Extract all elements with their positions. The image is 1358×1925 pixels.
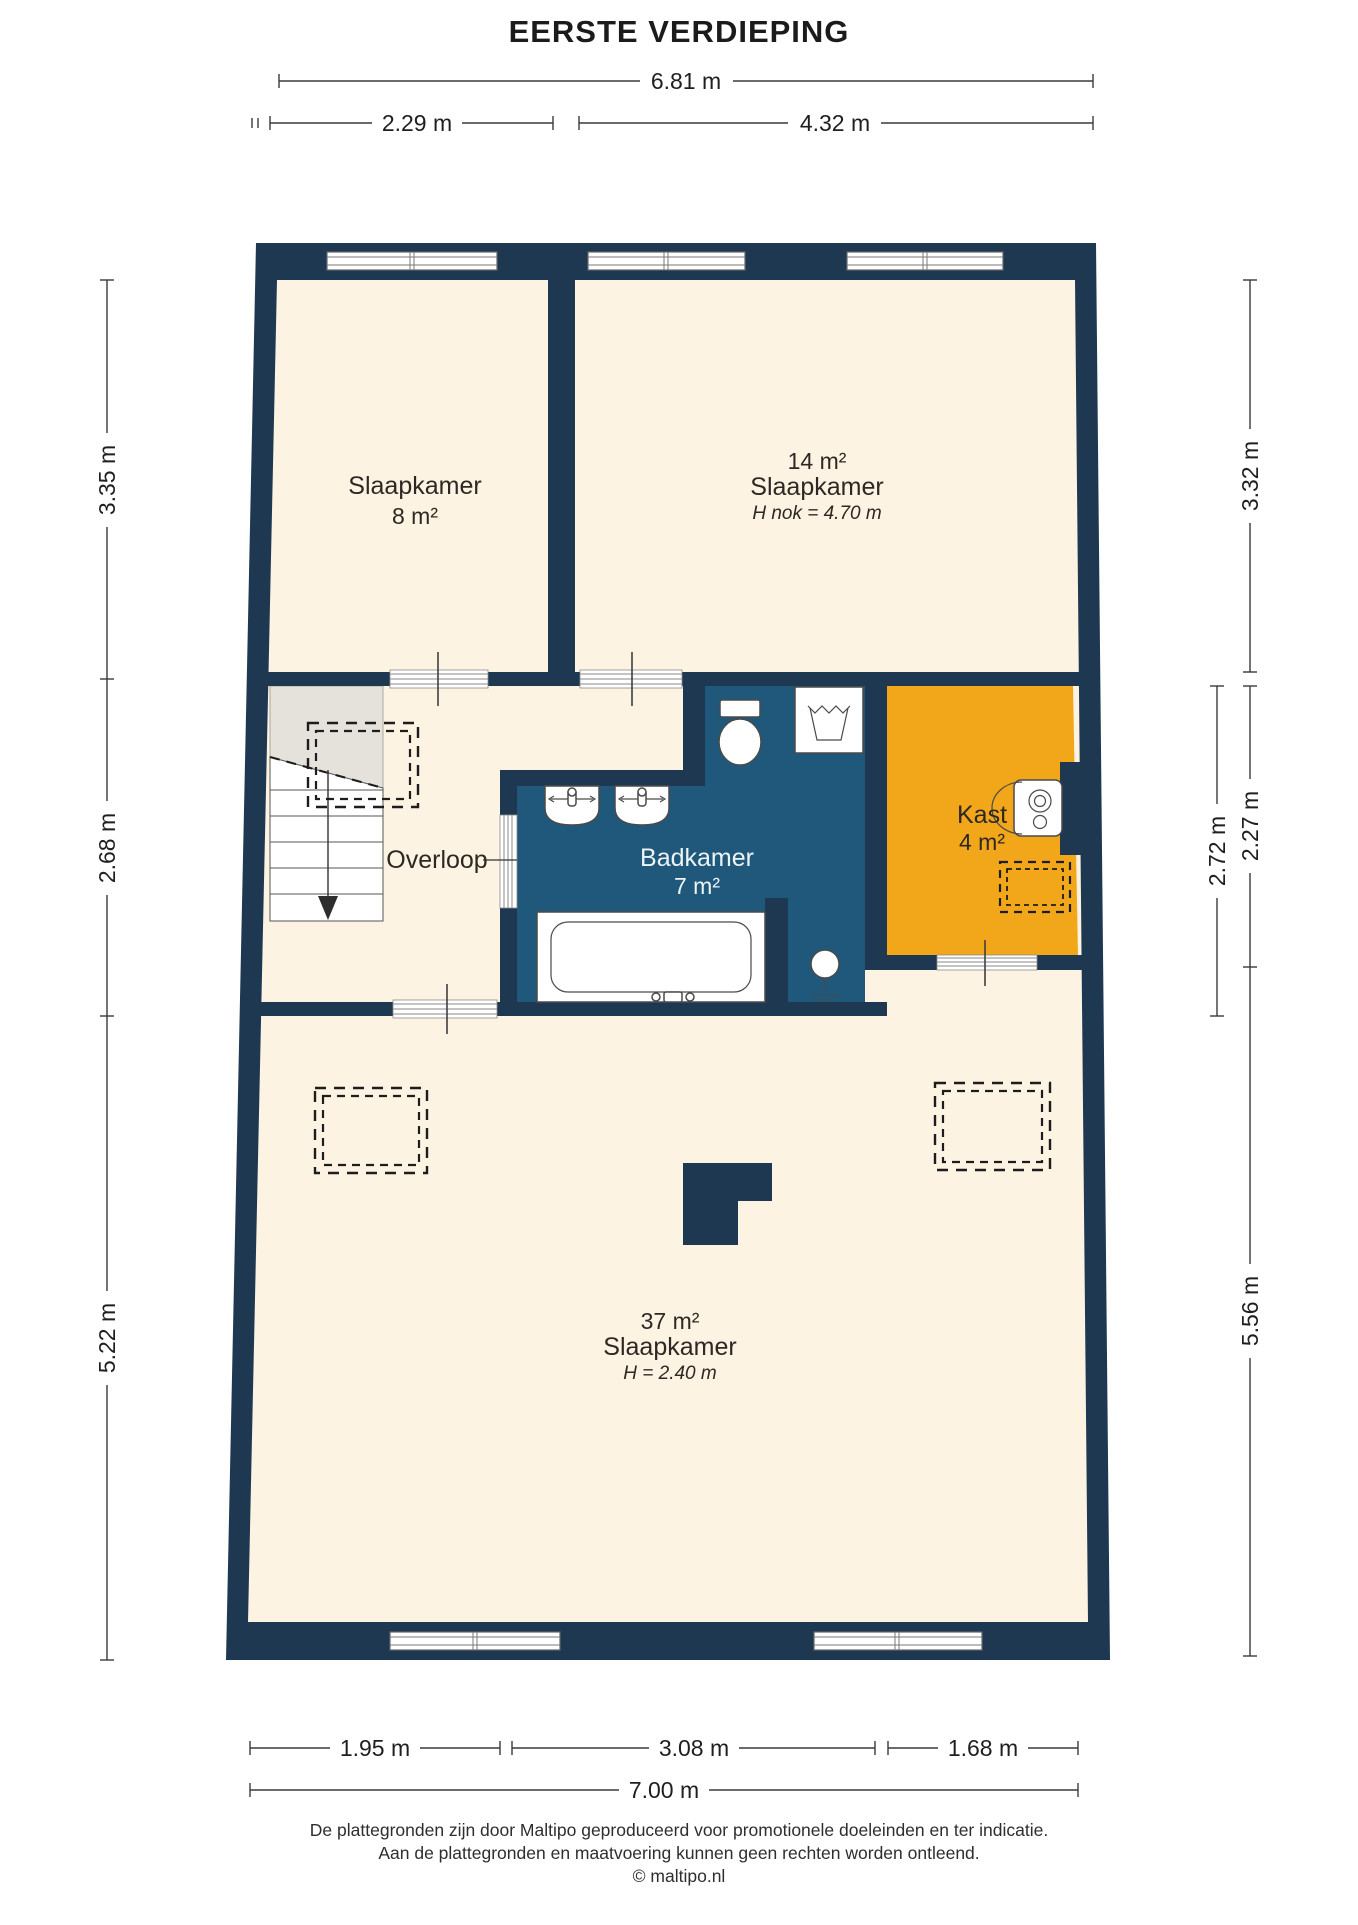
dimension-left: 3.35 m 2.68 m 5.22 m [94, 280, 120, 1660]
dim-top-total: 6.81 m [651, 68, 721, 94]
svg-text:Slaapkamer: Slaapkamer [750, 473, 883, 501]
dim-top-left: 2.29 m [382, 110, 452, 136]
footer-line-2: Aan de plattegronden en maatvoering kunn… [378, 1843, 979, 1863]
window [588, 252, 745, 270]
svg-text:H = 2.40 m: H = 2.40 m [623, 1363, 716, 1384]
svg-text:8 m²: 8 m² [392, 503, 438, 529]
footer: De plattegronden zijn door Maltipo gepro… [310, 1820, 1048, 1886]
svg-text:37 m²: 37 m² [641, 1308, 700, 1334]
wall-sink-nook [500, 770, 705, 786]
dim-left-top: 3.35 m [94, 445, 120, 515]
floorplan-page: EERSTE VERDIEPING 6.81 m 2.29 m 4.32 m 3… [0, 0, 1358, 1920]
svg-text:Kast: Kast [957, 801, 1007, 829]
wall-toilet-nook-left [683, 686, 705, 772]
wall-between-bedrooms [548, 280, 575, 672]
dim-right-middle-inner: 2.72 m [1204, 816, 1230, 886]
dim-top-right: 4.32 m [800, 110, 870, 136]
dimension-right-outer: 3.32 m 2.27 m 5.56 m [1237, 280, 1263, 1656]
svg-text:Overloop: Overloop [386, 846, 487, 874]
svg-text:H nok = 4.70 m: H nok = 4.70 m [752, 503, 881, 524]
dimension-top: 6.81 m 2.29 m 4.32 m [252, 68, 1093, 136]
wall-bathroom-closet [865, 686, 887, 970]
svg-text:Badkamer: Badkamer [640, 844, 754, 872]
floorplan-canvas: EERSTE VERDIEPING 6.81 m 2.29 m 4.32 m 3… [0, 0, 1358, 1920]
footer-copyright: © maltipo.nl [633, 1866, 726, 1886]
dimension-right-inner: 2.72 m [1204, 686, 1230, 1016]
svg-text:Slaapkamer: Slaapkamer [348, 472, 481, 500]
dim-bottom-right: 1.68 m [948, 1735, 1018, 1761]
footer-line-1: De plattegronden zijn door Maltipo gepro… [310, 1820, 1048, 1840]
building: Slaapkamer 8 m² 14 m² Slaapkamer H nok =… [226, 243, 1110, 1660]
svg-text:4 m²: 4 m² [959, 829, 1005, 855]
dim-right-middle-outer: 2.27 m [1237, 791, 1263, 861]
washing-machine-icon [795, 687, 863, 753]
dim-left-bottom: 5.22 m [94, 1303, 120, 1373]
dim-bottom-left: 1.95 m [340, 1735, 410, 1761]
sink-icon [615, 786, 669, 825]
wall-tub-shower [765, 898, 788, 1016]
svg-text:Slaapkamer: Slaapkamer [603, 1333, 736, 1361]
bathtub-icon [537, 912, 765, 1002]
dim-right-top: 3.32 m [1237, 441, 1263, 511]
windows-top [327, 252, 1003, 270]
dim-right-bottom: 5.56 m [1237, 1276, 1263, 1346]
page-title: EERSTE VERDIEPING [509, 14, 850, 49]
wall-landing-bottom [248, 1002, 887, 1016]
dimension-bottom: 1.95 m 3.08 m 1.68 m 7.00 m [250, 1735, 1078, 1803]
window [390, 1632, 560, 1650]
dim-left-middle: 2.68 m [94, 813, 120, 883]
window [814, 1632, 982, 1650]
dim-bottom-middle: 3.08 m [659, 1735, 729, 1761]
window [327, 252, 497, 270]
toilet-icon [719, 700, 761, 765]
svg-text:14 m²: 14 m² [788, 448, 847, 474]
svg-text:7 m²: 7 m² [674, 873, 720, 899]
sink-icon [545, 786, 599, 825]
wall-boiler-nook [1060, 762, 1098, 855]
door-bathroom [500, 815, 517, 908]
window [847, 252, 1003, 270]
label-kast: Kast 4 m² [957, 801, 1007, 855]
dim-bottom-total: 7.00 m [629, 1777, 699, 1803]
